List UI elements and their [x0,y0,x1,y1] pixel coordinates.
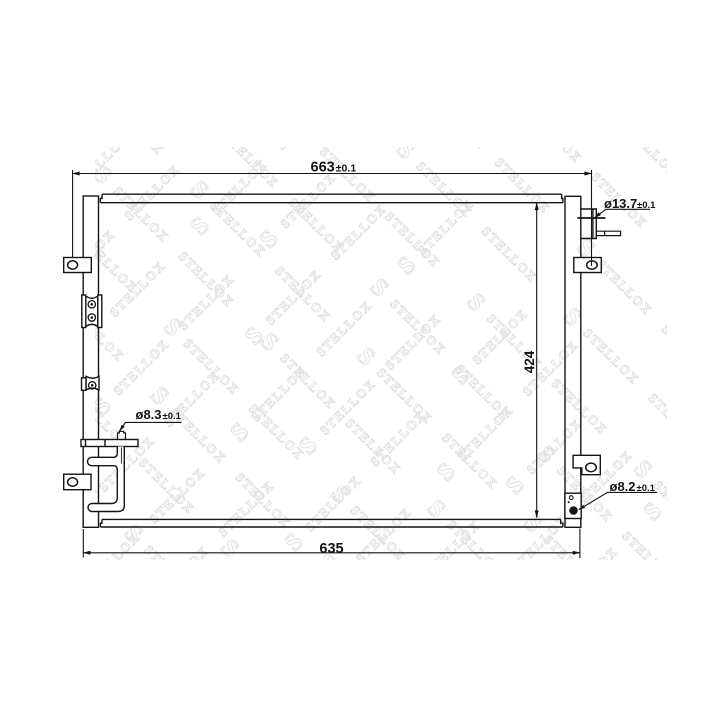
svg-text:ø13.7: ø13.7 [604,196,637,211]
svg-text:ø8.2: ø8.2 [610,479,636,494]
svg-text:±0.1: ±0.1 [637,200,656,211]
svg-text:424: 424 [522,350,537,373]
svg-text:±0.1: ±0.1 [163,411,182,422]
svg-text:635: 635 [319,541,343,557]
svg-text:663: 663 [311,159,335,175]
svg-text:±0.1: ±0.1 [637,483,656,494]
svg-text:±0.1: ±0.1 [336,162,357,174]
svg-text:ø8.3: ø8.3 [136,407,162,422]
